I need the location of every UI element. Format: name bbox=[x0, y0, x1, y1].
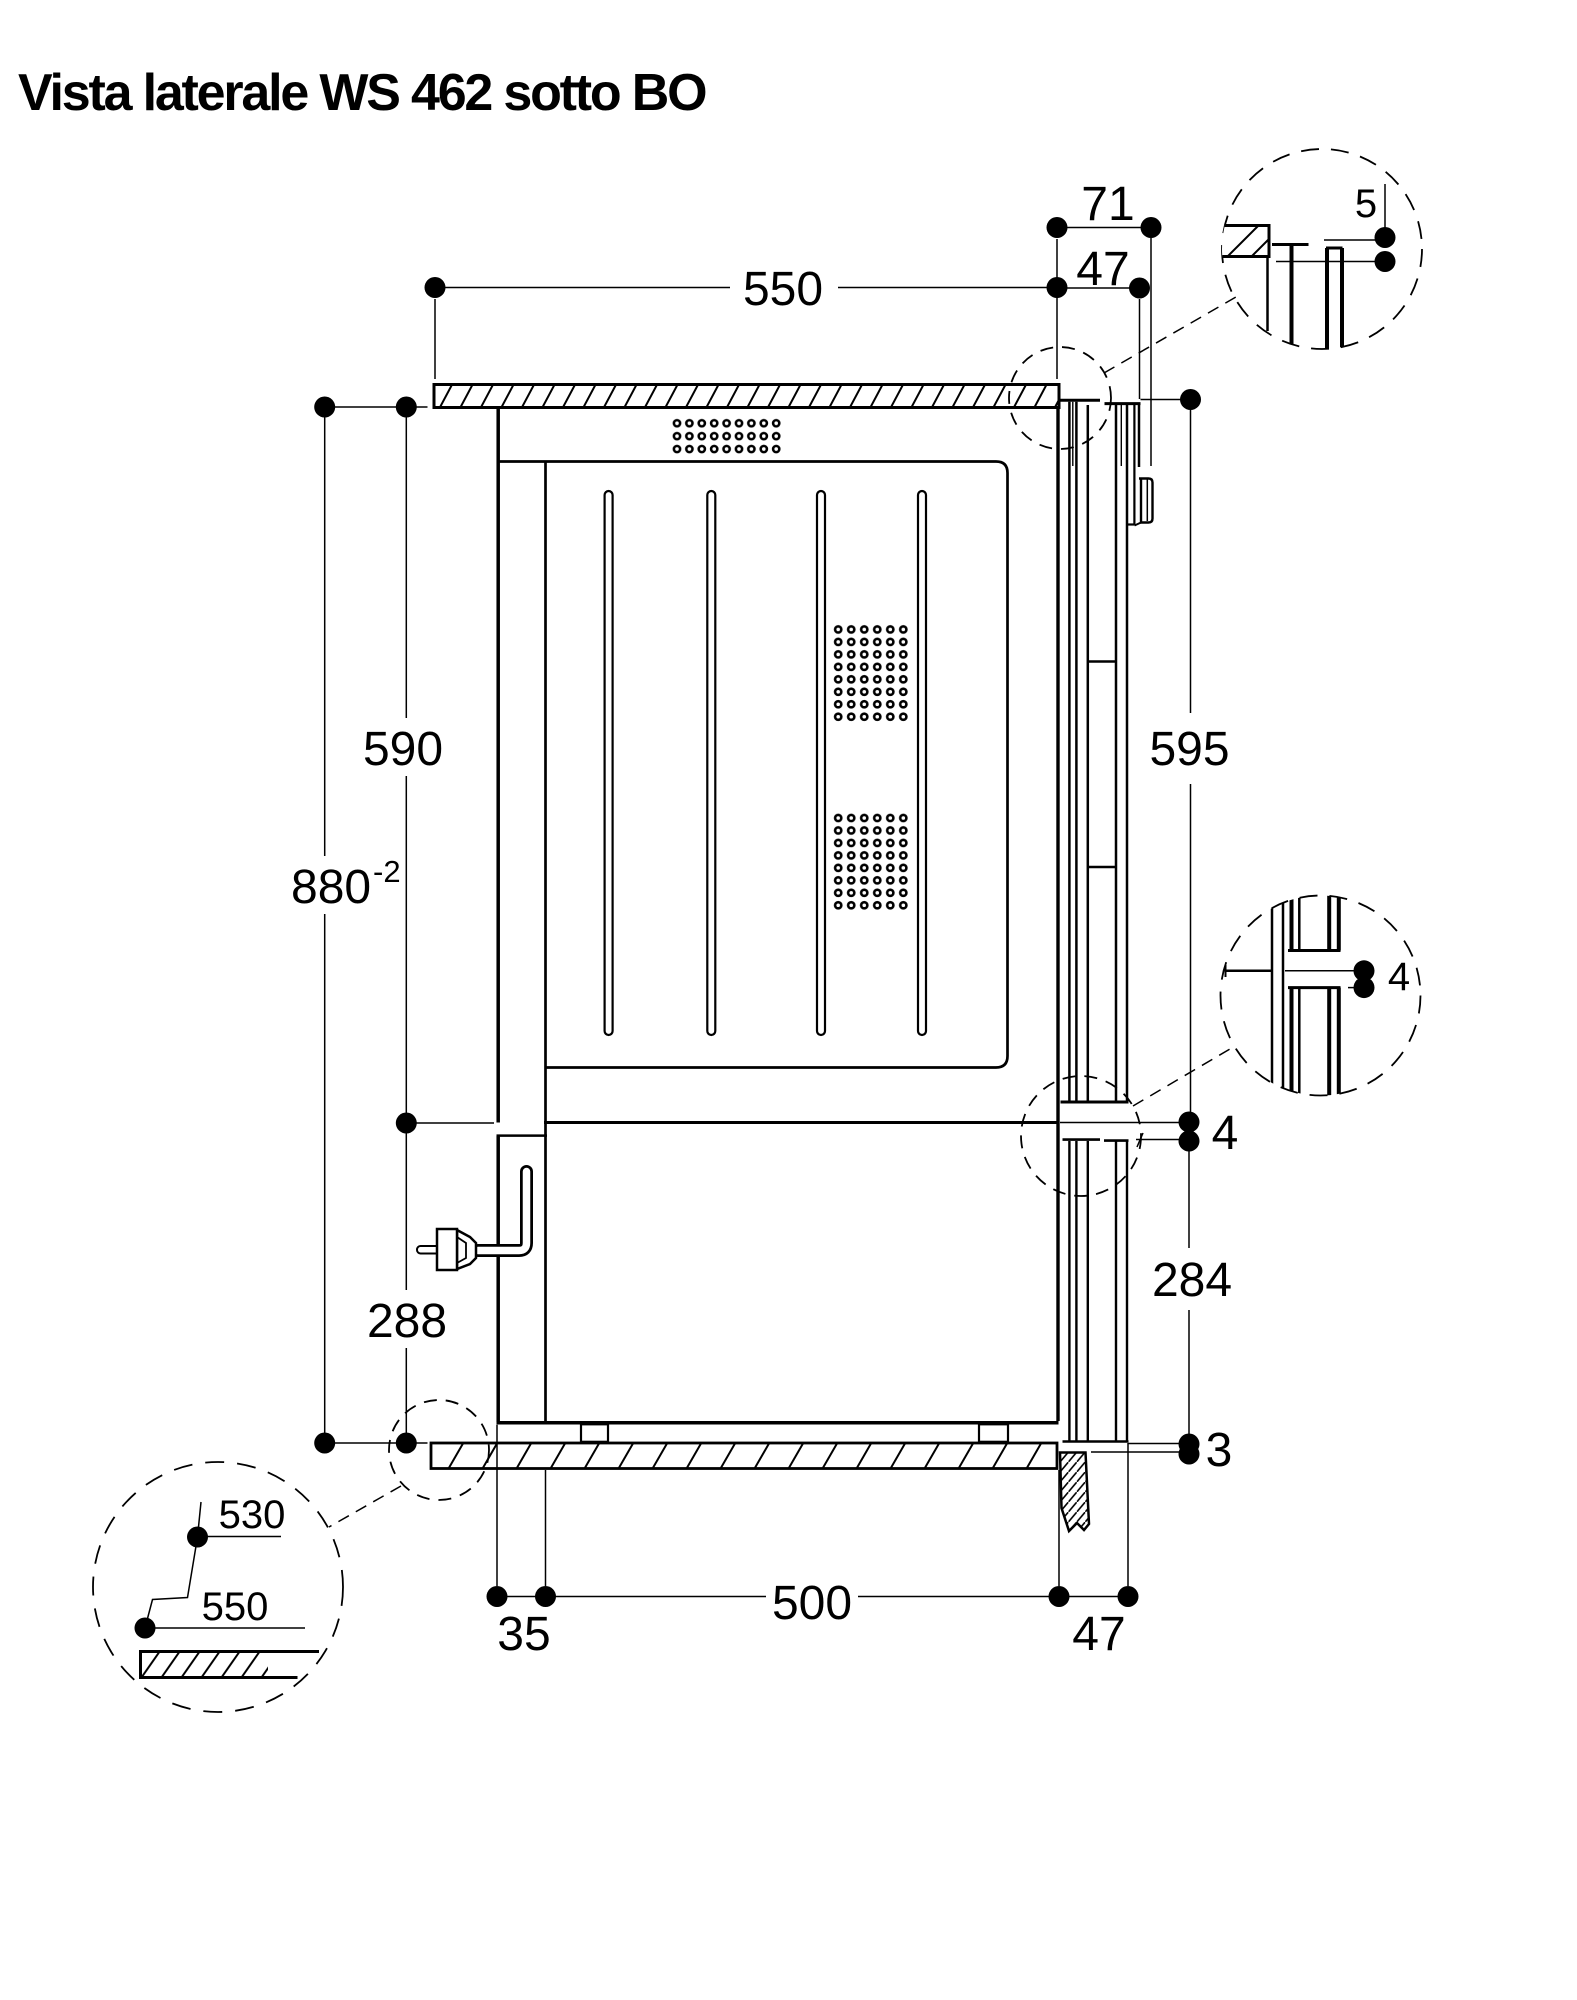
svg-text:3: 3 bbox=[1206, 1424, 1233, 1477]
svg-text:Vista laterale WS 462 sotto BO: Vista laterale WS 462 sotto BO bbox=[18, 64, 706, 122]
svg-text:-2: -2 bbox=[373, 854, 401, 889]
svg-text:5: 5 bbox=[1355, 182, 1377, 226]
svg-text:288: 288 bbox=[367, 1295, 447, 1348]
svg-text:4: 4 bbox=[1388, 955, 1410, 999]
svg-text:35: 35 bbox=[497, 1608, 550, 1661]
svg-text:71: 71 bbox=[1081, 178, 1134, 231]
svg-text:284: 284 bbox=[1152, 1254, 1232, 1307]
svg-text:595: 595 bbox=[1149, 723, 1229, 776]
svg-text:47: 47 bbox=[1072, 1608, 1125, 1661]
svg-text:550: 550 bbox=[202, 1585, 269, 1629]
svg-text:530: 530 bbox=[219, 1493, 286, 1537]
svg-text:4: 4 bbox=[1212, 1107, 1239, 1160]
svg-text:47: 47 bbox=[1076, 243, 1129, 296]
svg-text:590: 590 bbox=[363, 723, 443, 776]
svg-text:550: 550 bbox=[743, 263, 823, 316]
svg-text:500: 500 bbox=[772, 1577, 852, 1630]
svg-text:880: 880 bbox=[291, 861, 371, 914]
